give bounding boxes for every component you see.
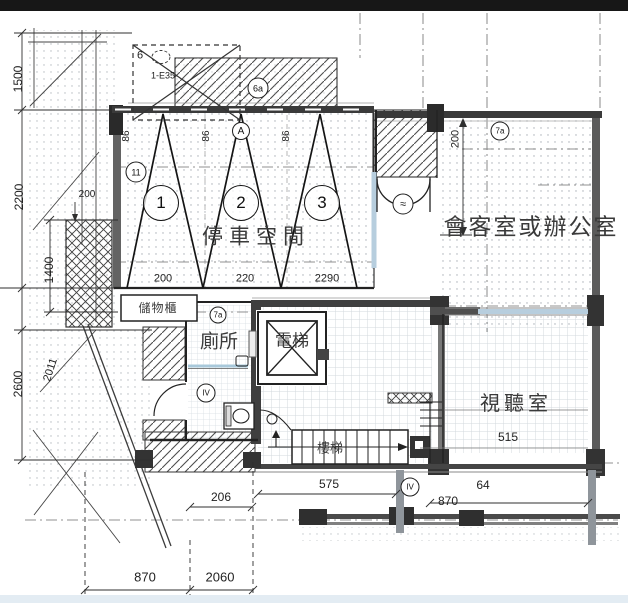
label-elevator: 電梯 — [275, 333, 309, 350]
label-meeting: 會客室或辦公室 — [444, 216, 619, 239]
beam-tag-6a: 6a — [248, 78, 269, 99]
dim-1500: 1500 — [12, 66, 24, 93]
dim-2060: 2060 — [206, 571, 235, 584]
label-parking: 停車空間 — [202, 227, 310, 248]
stall-number-3: 3 — [304, 185, 340, 221]
stall-number-1: 1 — [143, 185, 179, 221]
dim-stall-220: 220 — [236, 274, 254, 285]
label-stairs: 樓梯 — [317, 442, 343, 455]
toilet-tag-iv-label: IV — [202, 389, 210, 398]
window-parking-right — [372, 172, 377, 268]
dim-206: 206 — [211, 491, 231, 503]
dim-door-200: 200 — [451, 130, 462, 148]
bottom-tag-iv: IV — [401, 478, 420, 497]
label-av-room: 視聽室 — [480, 394, 552, 414]
dim-200-left: 200 — [79, 190, 96, 200]
dim-870-mid: 870 — [438, 495, 458, 507]
note-code: 1-E35 — [151, 72, 175, 81]
dim-64: 64 — [476, 479, 489, 491]
dim-870: 870 — [134, 571, 156, 584]
dim-2200: 2200 — [13, 184, 25, 211]
beam-tag-6a-label: 6a — [253, 83, 263, 93]
grid-tag-11: 11 — [126, 162, 147, 183]
dim-2600: 2600 — [12, 371, 24, 398]
dim-stall-200: 200 — [154, 274, 172, 285]
room-tag-7a: 7a — [491, 122, 510, 141]
stall-number-2: 2 — [223, 185, 259, 221]
room-tag-7a-label: 7a — [496, 127, 505, 136]
toilet-tag-iv: IV — [197, 384, 216, 403]
label-storage: 儲物櫃 — [138, 302, 177, 314]
stall-2-label: 2 — [236, 193, 245, 213]
window-av-top — [478, 309, 588, 314]
grid-tag-11-label: 11 — [131, 167, 140, 177]
dim-stall-2290: 2290 — [315, 274, 339, 285]
window-tag-86-1: 86 — [122, 130, 132, 141]
plan-linework — [0, 0, 628, 603]
toilet-tag-7a-label: 7a — [214, 311, 223, 320]
stall-1-label: 1 — [156, 193, 165, 213]
dim-575: 575 — [319, 478, 339, 490]
window-tag-86-2: 86 — [202, 130, 212, 141]
dim-1400: 1400 — [43, 257, 55, 284]
door-tag: ≈ — [393, 194, 414, 215]
stall-3-label: 3 — [317, 193, 326, 213]
label-toilet: 廁所 — [200, 333, 238, 352]
toilet-tag-7a: 7a — [210, 307, 227, 324]
door-tag-label: ≈ — [400, 198, 406, 210]
grid-tag-a: A — [232, 122, 250, 140]
dim-515: 515 — [498, 431, 518, 443]
bottom-tag-iv-label: IV — [406, 483, 414, 492]
window-tag-86-3: 86 — [282, 130, 292, 141]
note-number: 6 — [137, 51, 143, 62]
floor-plan-canvas: 停車空間 會客室或辦公室 視聽室 廁所 電梯 樓梯 儲物櫃 1 2 3 11 A… — [0, 0, 628, 603]
grid-tag-a-label: A — [238, 126, 245, 137]
